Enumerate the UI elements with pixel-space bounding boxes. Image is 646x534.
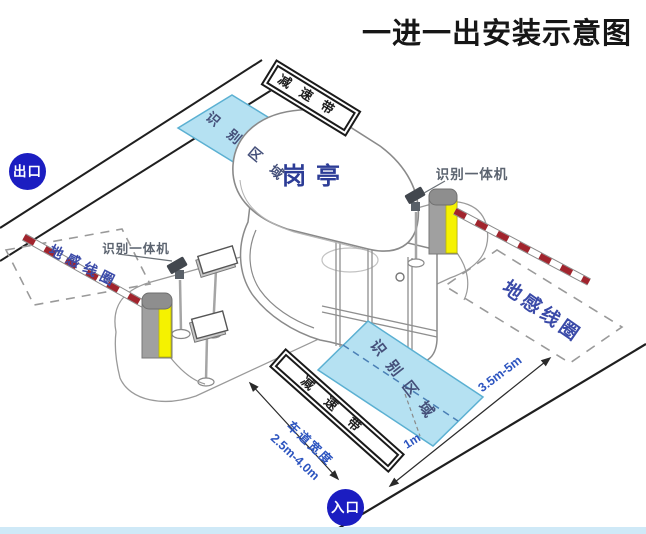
exit-badge: 出口 — [9, 153, 46, 190]
camera-right-label: 识别一体机 — [417, 163, 527, 183]
bottom-strip — [0, 527, 646, 534]
entrance-badge: 入口 — [327, 489, 364, 526]
diagram-canvas: 一进一出安装示意图 出口 入口 岗亭 减速带 减速带 识别区域 识别区域 地感线… — [0, 0, 646, 534]
camera-left-label: 识别一体机 — [86, 238, 186, 257]
diagram-title: 一进一出安装示意图 — [362, 10, 632, 52]
